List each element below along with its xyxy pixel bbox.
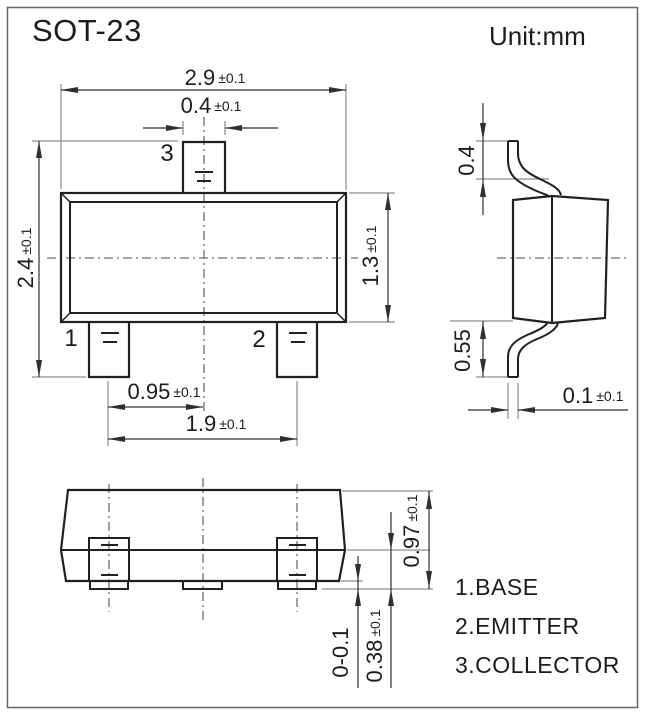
- dim-body-height: 0.97±0.1: [401, 495, 423, 568]
- package-body-side: [508, 141, 608, 377]
- datasheet-page: SOT-23 Unit:mm 2.9±0.1 0.4±0.1 2.4±0.1 1…: [0, 0, 645, 715]
- top-view-drawing: [32, 84, 395, 446]
- technical-drawing: [0, 0, 645, 715]
- dim-lead-pitch: 0.95±0.1: [128, 381, 201, 403]
- dim-lead-width: 0.4±0.1: [181, 95, 242, 117]
- dim-lead-bottom-length: 0.55: [452, 326, 474, 372]
- pin-1-label: 1: [64, 327, 77, 351]
- dim-lead-span: 1.9±0.1: [186, 413, 247, 435]
- dimension-lines: [468, 103, 628, 410]
- dim-overall-length: 2.4±0.1: [15, 228, 37, 289]
- unit-label: Unit:mm: [489, 23, 586, 49]
- page-title: SOT-23: [32, 15, 142, 46]
- dim-lead-top-length: 0.4: [456, 142, 478, 176]
- centerlines: [47, 117, 358, 412]
- legend-item-base: 1.BASE: [455, 574, 539, 601]
- gull-wing-leads: [508, 141, 561, 377]
- dim-body-width: 2.9±0.1: [185, 67, 246, 89]
- dim-lead-thickness: 0.1±0.1: [563, 385, 624, 407]
- extension-lines: [32, 84, 395, 446]
- legend-item-collector: 3.COLLECTOR: [455, 652, 620, 679]
- pin-2-label: 2: [252, 328, 265, 352]
- dim-standoff: 0-0.1: [330, 624, 352, 677]
- extension-lines: [450, 141, 549, 419]
- dim-lead-foot-height: 0.38±0.1: [364, 610, 386, 683]
- page-frame: [8, 8, 638, 708]
- dim-body-length: 1.3±0.1: [360, 226, 382, 287]
- legend-item-emitter: 2.EMITTER: [455, 613, 580, 640]
- pin-3-label: 3: [160, 142, 173, 166]
